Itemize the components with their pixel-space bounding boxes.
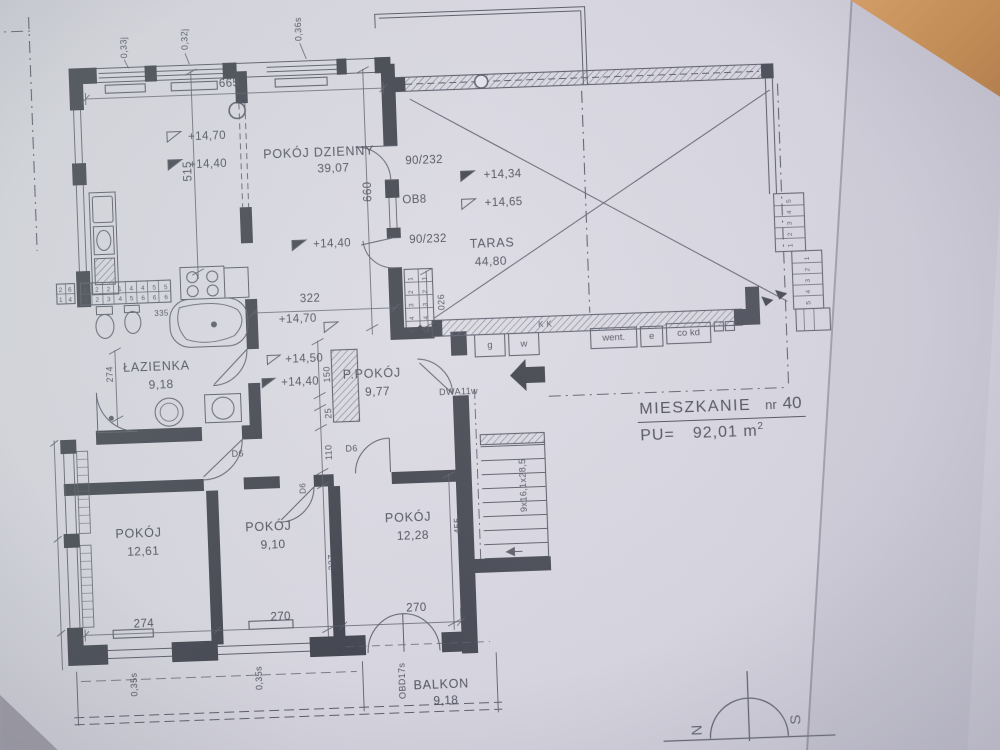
stair-note: 9x16,1x28,5	[517, 458, 529, 512]
living-room-area: 39,07	[317, 160, 350, 175]
level-living-door: +14,70	[279, 313, 317, 326]
dim-bath-detail: 335	[154, 309, 169, 319]
living-steps-right: 5 4 3 2 1	[421, 276, 430, 333]
bathroom-area: 9,18	[148, 377, 173, 392]
door-d6-room1: D6	[231, 448, 244, 458]
dim-room3-depth: 455	[452, 517, 463, 534]
dim-bath-depth: 274	[104, 366, 115, 383]
apartment-number-label: nr	[765, 397, 777, 412]
pu-unit: m2	[743, 423, 764, 441]
dim-room3-width: 270	[406, 602, 427, 615]
compass-s-label: S	[787, 714, 804, 725]
apartment-name: MIESZKANIE	[639, 397, 751, 418]
room3-area: 12,28	[397, 528, 430, 543]
floor-plan-photo: 5 4 3 2 1 5 4 3 2 1 1 2 3 4 5 5 4 3 2 1 …	[0, 0, 1000, 750]
dim-room1-width: 274	[133, 618, 154, 631]
balcony-door-label: OBD17s	[396, 662, 407, 699]
dim-living-depth: 660	[362, 181, 375, 202]
door-label-lower: 90/232	[409, 233, 447, 246]
level-hall-upper: +14,50	[285, 352, 323, 365]
window-label-b2: 0,35s	[254, 666, 265, 690]
level-terrace-lower: +14,65	[485, 196, 523, 209]
balcony-area: 9,18	[433, 693, 458, 708]
level-living: +14,40	[313, 237, 351, 250]
window-label-3: 0,36s	[293, 17, 304, 41]
service-wall-mark: K K	[538, 320, 552, 330]
window-label-1: 0,33j	[118, 37, 129, 59]
terrace-steps-upper: 1 2 3 4 5	[786, 199, 795, 248]
entry-door-label: DWA11w	[439, 386, 478, 397]
service-label-co: co kd	[677, 327, 700, 339]
level-kitchen-lower: +14,40	[189, 158, 227, 171]
living-steps-left: 5 4 3 2 1	[407, 277, 416, 334]
terrace-steps-lower: 5 4 3 2 1	[804, 256, 813, 305]
hall-area: 9,77	[365, 384, 390, 399]
dim-hall-25: 25	[323, 408, 333, 419]
kitchen-west-wall	[68, 68, 91, 307]
bathroom-name: ŁAZIENKA	[123, 358, 190, 374]
pu-label: PU=	[640, 426, 675, 444]
rooms-west-wall	[50, 439, 95, 670]
axis-lines	[0, 0, 789, 416]
level-hall-lower: +14,40	[281, 376, 319, 389]
room2-name: POKÓJ	[245, 519, 292, 535]
riser-left-top: 2 6	[58, 287, 72, 294]
level-kitchen-upper: +14,70	[188, 130, 226, 143]
dim-living-steps: 026	[436, 294, 447, 311]
terrace-area: 44,80	[475, 254, 508, 269]
terrace-north-wall	[393, 64, 778, 208]
pu-value: 92,01	[693, 424, 739, 443]
room1-name: POKÓJ	[115, 526, 162, 542]
service-label-went: went.	[602, 332, 625, 344]
terrace-roof-lines	[410, 86, 788, 319]
dim-living-width: 322	[300, 293, 321, 306]
dim-top-width: 665	[219, 77, 240, 90]
door-d6-room2: D6	[298, 483, 307, 494]
room2-area: 9,10	[260, 537, 285, 552]
balcony-name: BALKON	[413, 676, 469, 692]
living-east-wall	[353, 64, 405, 341]
apartment-title-block: MIESZKANIEnr 40 PU=92,01 m2	[637, 393, 807, 445]
level-terrace-upper: +14,34	[484, 168, 522, 181]
dim-room2-width: 270	[270, 611, 291, 624]
hall-name: P.POKÓJ	[343, 366, 402, 382]
service-label-e: e	[649, 331, 655, 342]
kitchen-living-divider	[235, 71, 253, 243]
riser-left-bottom: 1 4	[59, 297, 73, 304]
room3-name: POKÓJ	[385, 510, 432, 526]
room-divider-walls	[204, 425, 478, 663]
door-d6-room3: D6	[345, 443, 358, 453]
window-label-b1: 0,35s	[129, 672, 140, 696]
compass-n-label: N	[688, 724, 705, 736]
apartment-number: 40	[782, 393, 802, 413]
terrace-name: TARAS	[470, 235, 515, 251]
service-label-g: g	[487, 340, 493, 351]
dim-corridor-110: 110	[323, 444, 334, 460]
dim-hall-150: 150	[322, 366, 333, 383]
room1-area: 12,61	[127, 544, 160, 559]
service-label-w: w	[520, 338, 527, 349]
door-label-upper: 90/232	[405, 154, 443, 167]
dim-room2-depth: 337	[326, 554, 337, 571]
window-label-2: 0,32j	[179, 28, 190, 50]
window-label-ob8: OB8	[402, 194, 427, 207]
staircase	[468, 386, 551, 573]
